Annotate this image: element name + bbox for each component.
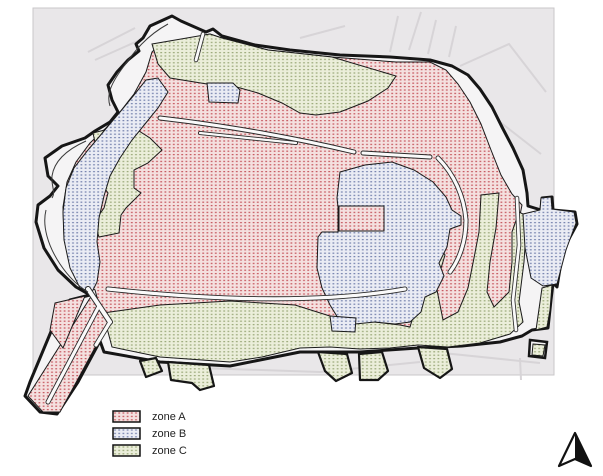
map-canvas: zone A zone B zone C: [0, 0, 603, 476]
zone-c-square: [532, 344, 545, 356]
legend-label-zone-b: zone B: [152, 428, 186, 440]
zone-b-blob-foot: [330, 316, 356, 332]
legend-label-zone-a: zone A: [152, 411, 186, 423]
legend-swatch-zone-b: [113, 428, 140, 439]
legend-swatch-zone-c: [113, 445, 140, 456]
north-arrow-icon: [559, 433, 591, 466]
legend-label-zone-c: zone C: [152, 445, 187, 457]
zoning-map-figure: zone A zone B zone C: [0, 0, 603, 476]
legend-swatch-zone-a: [113, 411, 140, 422]
zone-a-notch-in-blob: [339, 206, 384, 231]
legend: zone A zone B zone C: [113, 411, 187, 457]
zone-b-top-patch: [207, 83, 240, 103]
